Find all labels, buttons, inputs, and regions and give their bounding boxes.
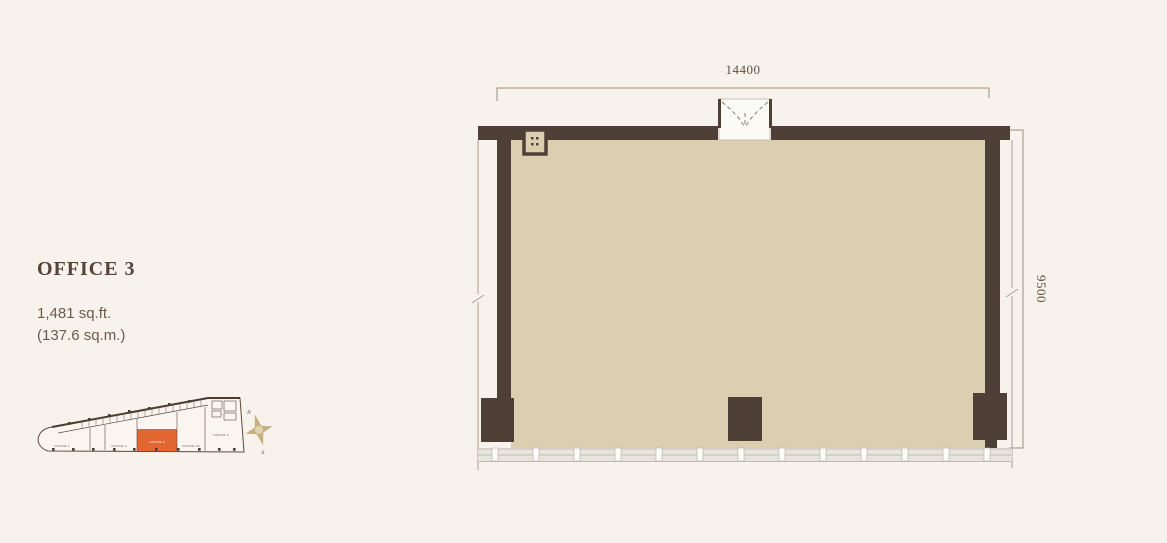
column-right <box>973 393 1007 440</box>
dimension-label-width: 14400 <box>726 62 761 77</box>
column-middle <box>728 397 762 441</box>
dimension-label-height: 9500 <box>1034 275 1049 303</box>
unit-area: 1,481 sq.ft. (137.6 sq.m.) <box>37 303 136 347</box>
keyplan-label-office3: OFFICE 3 <box>149 440 165 444</box>
compass-icon <box>241 411 276 449</box>
unit-area-sqft: 1,481 sq.ft. <box>37 303 136 325</box>
curtain-wall-band <box>478 448 1012 462</box>
unit-title: OFFICE 3 <box>37 258 136 281</box>
column-left <box>481 398 514 442</box>
keyplan-label-office2: OFFICE 2 <box>111 444 127 448</box>
keyplan: OFFICE 1 OFFICE 2 OFFICE 3 OFFICE 3A OFF… <box>28 388 280 466</box>
keyplan-label-office3a: OFFICE 3A <box>182 444 201 448</box>
column-right-stem <box>985 440 997 449</box>
unit-info-panel: OFFICE 3 1,481 sq.ft. (137.6 sq.m.) <box>37 258 136 347</box>
door-leaf-right <box>769 99 772 128</box>
door-leaf-left <box>718 99 721 128</box>
break-mark-left <box>472 295 484 303</box>
wall-top-right <box>771 126 1010 140</box>
wall-top-left <box>478 126 718 140</box>
electrical-panel-icon <box>524 130 546 154</box>
compass-center <box>255 426 263 434</box>
wall-left <box>497 140 511 398</box>
entrance-door-recess <box>719 99 770 140</box>
keyplan-label-office5: OFFICE 5 <box>213 433 229 437</box>
unit-area-sqm: (137.6 sq.m.) <box>37 325 136 347</box>
compass-north-label: N <box>246 410 251 416</box>
floorplan: 14400 9500 <box>460 50 1070 490</box>
wall-right <box>985 140 1000 393</box>
break-mark-right <box>1006 289 1018 297</box>
compass-south-label: S <box>262 450 265 456</box>
keyplan-label-office1: OFFICE 1 <box>54 444 70 448</box>
dimension-line-right <box>1009 130 1023 448</box>
floor-plan-page: OFFICE 3 1,481 sq.ft. (137.6 sq.m.) <box>0 0 1167 543</box>
